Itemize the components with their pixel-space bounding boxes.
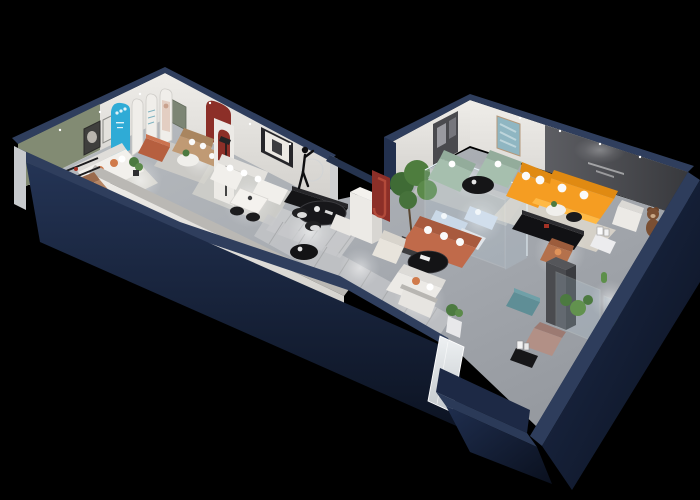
- wall-cut-edge: [14, 146, 26, 210]
- black-occasional-table: [290, 244, 318, 260]
- scene-3d-floorplan: Cutaway 3D dollhouse render of a furnitu…: [0, 0, 700, 500]
- black-dining-chair: [246, 213, 260, 222]
- black-dining-chair: [230, 207, 244, 216]
- black-tray-table: [566, 212, 582, 222]
- red-j-arch-banner: [372, 170, 390, 222]
- cactus: [601, 272, 607, 283]
- sage-room-coffee-table: [462, 176, 494, 194]
- floorplan-svg: [0, 0, 700, 500]
